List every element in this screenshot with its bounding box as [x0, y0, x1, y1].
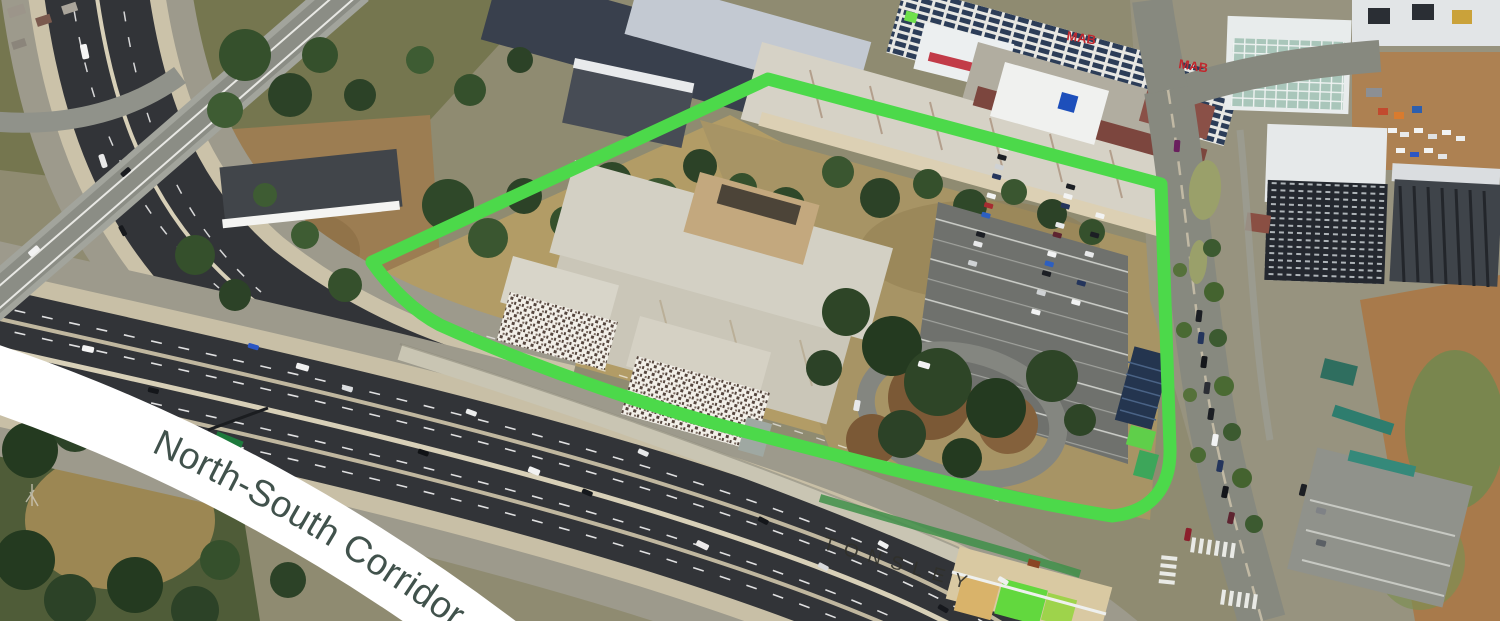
hotel-tower — [1264, 124, 1387, 284]
aerial-photo-tonsley: TONSLEY MAB MAB North-South Corridor — [0, 0, 1500, 621]
louver-building — [1389, 163, 1500, 287]
aerial-scene: TONSLEY MAB MAB North-South Corridor — [0, 0, 1500, 621]
